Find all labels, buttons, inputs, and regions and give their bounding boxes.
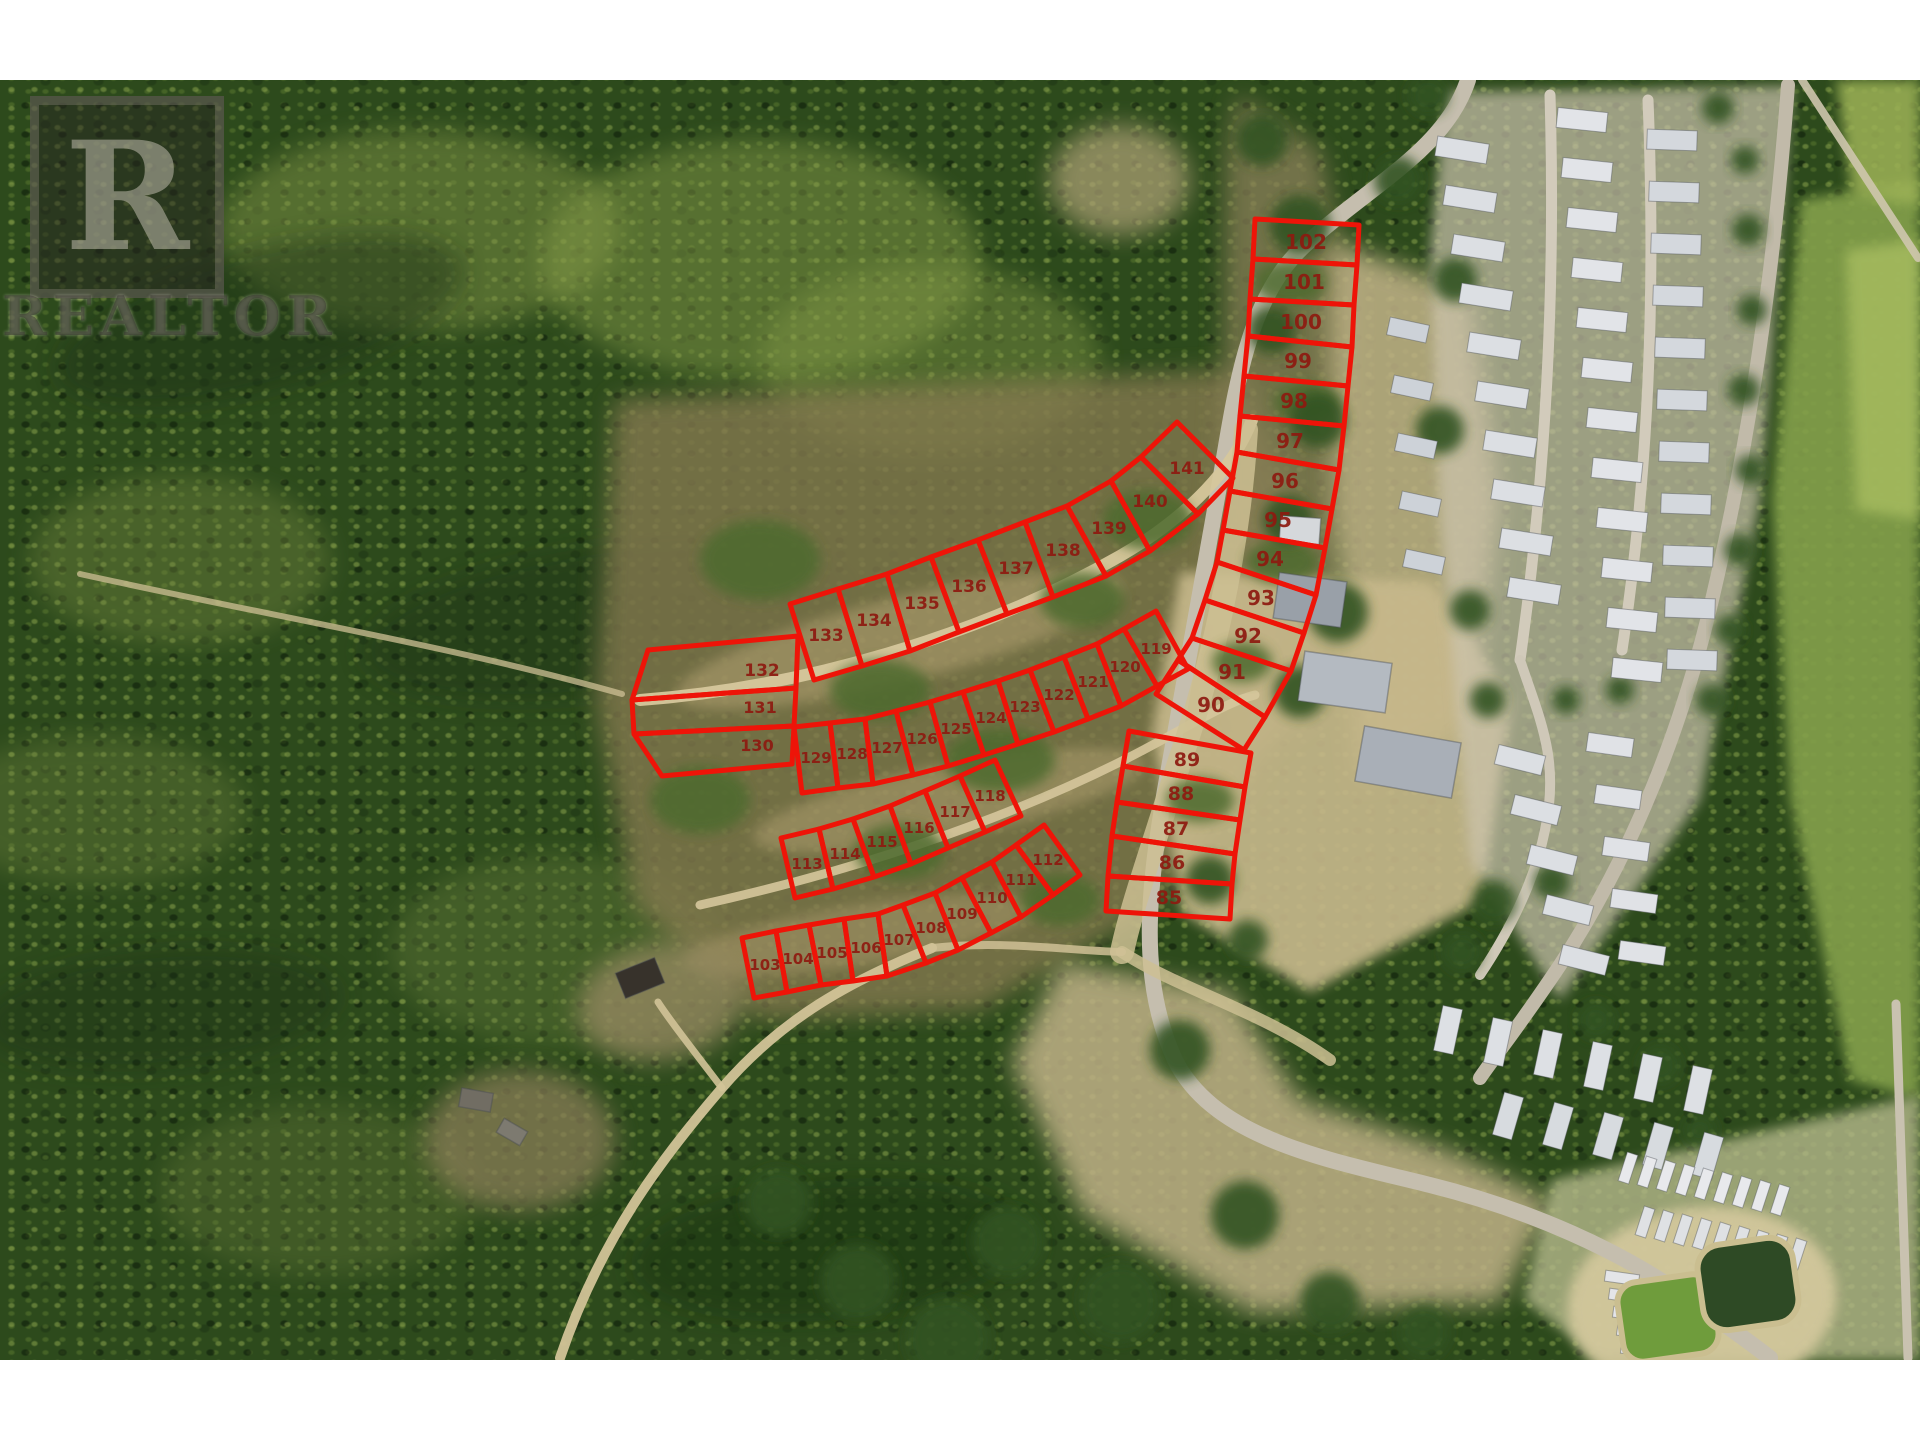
house-roof: [1663, 545, 1714, 567]
tree: [1737, 295, 1767, 325]
lot-number-label: 102: [1285, 230, 1327, 254]
house-roof: [1647, 129, 1698, 151]
lot-number-label: 138: [1045, 541, 1081, 561]
tree: [1606, 676, 1634, 704]
lot-number-label: 87: [1163, 818, 1189, 840]
lot-number-label: 90: [1197, 693, 1225, 717]
lot-number-label: 139: [1091, 519, 1127, 539]
lot-number-label: 96: [1271, 469, 1299, 493]
lot-number-label: 93: [1247, 586, 1275, 610]
lot-number-label: 137: [998, 559, 1034, 579]
tree: [906, 1298, 990, 1382]
house-roof: [1649, 181, 1700, 203]
lot-number-label: 104: [782, 950, 813, 968]
lot-number-label: 89: [1174, 749, 1200, 771]
lot-number-label: 134: [856, 611, 892, 631]
house-roof: [1651, 233, 1702, 255]
lot-number-label: 91: [1218, 660, 1246, 684]
tree: [1731, 146, 1759, 174]
lot-number-label: 98: [1280, 389, 1308, 413]
lot-number-label: 122: [1043, 686, 1074, 704]
tree: [744, 1168, 812, 1236]
tree: [1472, 880, 1516, 924]
lot-number-label: 103: [749, 956, 780, 974]
tree: [1732, 214, 1764, 246]
tree: [1578, 1002, 1614, 1038]
tree: [1735, 455, 1765, 485]
lot-number-label: 106: [850, 939, 881, 957]
lot-number-label: 110: [976, 889, 1007, 907]
lot-number-label: 124: [975, 709, 1006, 727]
lot-number-label: 99: [1284, 349, 1312, 373]
tree: [1470, 682, 1506, 718]
tree: [1724, 534, 1756, 566]
lot-number-label: 109: [946, 905, 977, 923]
lot-number-label: 92: [1234, 624, 1262, 648]
tree: [1236, 114, 1288, 166]
tree: [972, 1206, 1044, 1278]
lot-number-label: 136: [951, 577, 987, 597]
lot-number-label: 117: [939, 803, 970, 821]
house-roof: [1665, 597, 1716, 619]
lot-number-label: 86: [1159, 852, 1185, 874]
lot-number-label: 131: [743, 698, 776, 717]
house-roof: [1653, 285, 1704, 307]
house-roof: [1583, 1041, 1612, 1090]
lot-number-label: 115: [866, 833, 897, 851]
tree: [1552, 686, 1580, 714]
house-roof: [1655, 337, 1706, 359]
tree: [1080, 1262, 1160, 1342]
lot-number-label: 123: [1009, 698, 1040, 716]
house-roof: [1667, 649, 1718, 671]
house-roof: [1542, 1102, 1573, 1150]
tree: [1715, 615, 1745, 645]
shrub-cluster: [1040, 572, 1124, 628]
tree: [1211, 1181, 1279, 1249]
house-roof: [1483, 1017, 1512, 1066]
tree: [1442, 932, 1482, 972]
house-roof: [1657, 389, 1708, 411]
lot-number-label: 132: [744, 661, 780, 681]
lot-number-label: 130: [740, 736, 773, 755]
tree: [1696, 684, 1728, 716]
house-roof: [1433, 1005, 1462, 1054]
lot-number-label: 97: [1276, 429, 1304, 453]
lot-number-label: 101: [1283, 270, 1325, 294]
terrain-patch: [0, 735, 245, 885]
tree: [820, 1244, 896, 1320]
lot-number-label: 121: [1077, 673, 1108, 691]
lot-number-label: 129: [800, 749, 831, 767]
lot-number-label: 100: [1280, 310, 1322, 334]
tree: [1408, 75, 1448, 115]
tree: [1398, 1306, 1450, 1358]
house-roof: [1618, 940, 1666, 965]
lot-number-label: 125: [940, 720, 971, 738]
tree: [1374, 156, 1422, 204]
lot-number-label: 141: [1169, 459, 1205, 479]
lot-number-label: 105: [816, 944, 847, 962]
tree: [1450, 590, 1490, 630]
lot-number-label: 113: [791, 855, 822, 873]
terrain-patch: [1846, 240, 1920, 520]
lot-number-label: 107: [883, 931, 914, 949]
lot-number-label: 111: [1005, 871, 1036, 889]
tree: [1702, 92, 1734, 124]
lot-number-label: 94: [1256, 547, 1284, 571]
pond: [1694, 1235, 1801, 1334]
house-roof: [1592, 1112, 1623, 1160]
tree: [1728, 374, 1760, 406]
lot-number-label: 112: [1032, 851, 1063, 869]
lot-number-label: 140: [1132, 492, 1168, 512]
terrain-patch: [1050, 125, 1190, 235]
tree: [1150, 1020, 1210, 1080]
terrain-patch: [0, 935, 345, 1086]
shrub-cluster: [700, 520, 820, 600]
lot-number-label: 85: [1156, 887, 1182, 909]
tree: [1228, 920, 1268, 960]
real-estate-aerial-listing-photo: 1021011009998979695949392919089888786851…: [0, 0, 1920, 1440]
tree: [1626, 52, 1654, 80]
lot-number-label: 118: [974, 787, 1005, 805]
lot-number-label: 95: [1264, 508, 1292, 532]
lot-number-label: 135: [904, 594, 940, 614]
lot-number-label: 128: [836, 745, 867, 763]
lot-number-label: 133: [808, 626, 844, 646]
lot-number-label: 126: [906, 730, 937, 748]
lot-number-label: 108: [915, 919, 946, 937]
lot-number-label: 114: [829, 845, 860, 863]
tree: [1300, 1272, 1360, 1332]
house-roof: [1659, 441, 1710, 463]
house-roof: [1492, 1092, 1523, 1140]
aerial-photo-overlay: 1021011009998979695949392919089888786851…: [0, 0, 1920, 1440]
house-roof: [1533, 1029, 1562, 1078]
lot-number-label: 127: [871, 739, 902, 757]
house-roof: [1683, 1065, 1712, 1114]
lot-number-label: 116: [903, 819, 934, 837]
house-roof: [1633, 1053, 1662, 1102]
tree: [1544, 46, 1576, 78]
house-roof: [1661, 493, 1712, 515]
lot-number-label: 119: [1140, 640, 1171, 658]
lot-number-label: 88: [1168, 783, 1194, 805]
lot-number-label: 120: [1109, 658, 1140, 676]
terrain-patch: [1836, 80, 1920, 205]
